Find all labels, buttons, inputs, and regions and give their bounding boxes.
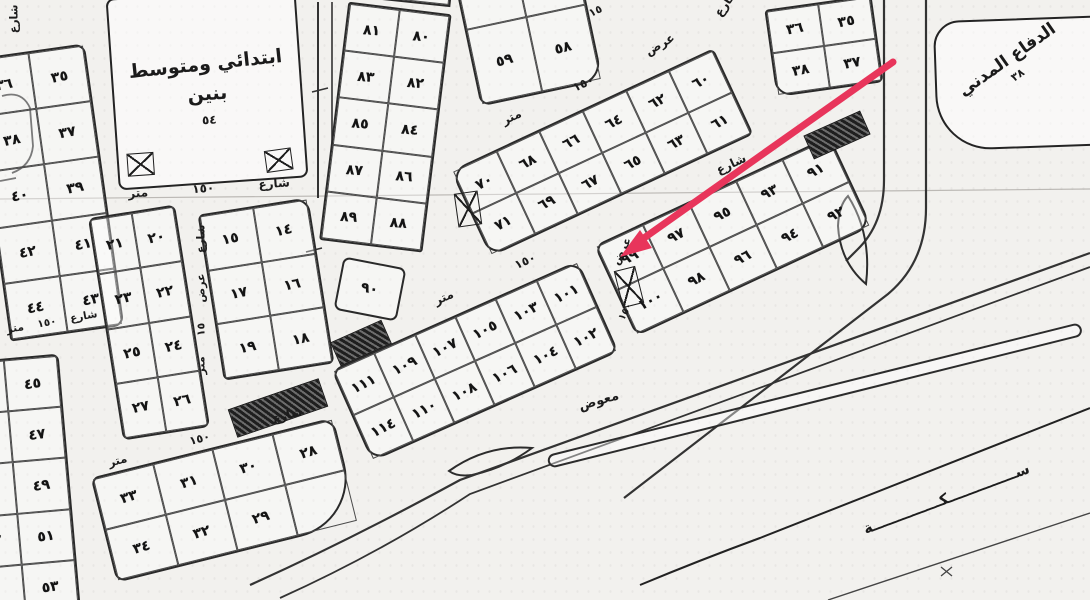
plot-cell: ٥١ — [17, 509, 74, 565]
plot-number: ١٩ — [238, 338, 258, 357]
plot-number: ٤١ — [73, 235, 93, 254]
plot-number: ١٠٤ — [530, 343, 560, 369]
plot-number: ٦٠ — [689, 70, 712, 92]
meter-word: متر — [195, 356, 208, 374]
plot-cell: ٣٥ — [28, 46, 91, 109]
plot-number: ٤٣ — [81, 290, 101, 309]
plot-number: ٢٩ — [251, 508, 272, 528]
plot-cell: ٨٠ — [394, 10, 449, 63]
street-width-value: ١٥ — [195, 323, 208, 336]
utility-box-icon — [264, 147, 294, 173]
plot-number: ٢٦ — [173, 391, 193, 410]
plot-cell: ٤٧ — [8, 407, 65, 463]
plot-cell: ٣٩ — [44, 157, 107, 220]
plot-cell: ٣٦ — [767, 4, 824, 53]
plot-number: ٣٥ — [49, 68, 69, 87]
plot-number: ٢٠ — [147, 228, 167, 247]
plot-number: ١٠٣ — [511, 299, 541, 325]
plot-number: ٢٣ — [114, 289, 134, 308]
street-label-vertical: شارع عرض ١٥ متر — [195, 225, 208, 375]
plot-number: ٤٢ — [18, 243, 38, 262]
plot-number: ٩٢ — [825, 203, 848, 225]
plot-block-35-38-east: ٣٦٣٥٣٨٣٧ — [764, 0, 883, 97]
plot-number: ٣٩ — [65, 179, 85, 198]
plot-cell: ٨٦ — [377, 151, 432, 204]
plot-number: ١١٤ — [368, 415, 398, 441]
plot-number: ١٦ — [283, 275, 303, 294]
plot-number: ٣٢ — [191, 523, 212, 543]
plot-cell: ٨٣ — [339, 51, 394, 104]
plot-number: ٦٥ — [622, 152, 645, 174]
plot-number: ٦٩ — [535, 192, 558, 214]
plot-number: ١٤ — [274, 221, 294, 240]
plot-number: ٨٩ — [340, 209, 358, 226]
plot-cell: ٢٢ — [140, 261, 190, 322]
plot-number: ٥١ — [36, 528, 55, 546]
plot-number: ٣٨ — [2, 131, 22, 150]
plot-number: ٤٩ — [32, 477, 51, 495]
plot-cell: ٨١ — [344, 4, 399, 57]
plot-number: ٩٠ — [360, 280, 379, 298]
plot-number: ٣٥ — [837, 12, 857, 31]
plot-cell: ١٦ — [262, 254, 324, 316]
plot-cell: ١٩ — [217, 316, 279, 378]
plot-cell: ٤٥ — [4, 356, 61, 412]
width-word: عرض — [195, 273, 208, 302]
plot-cell: ٨٩ — [321, 191, 376, 244]
corner-island — [449, 447, 532, 475]
plot-number: ٢٥ — [123, 343, 143, 362]
utility-box-icon — [126, 152, 155, 177]
meter-word: متر — [128, 185, 149, 200]
plot-cell: ٢٦ — [158, 370, 208, 431]
plot-number: ٨٤ — [401, 122, 419, 139]
plot-number: ٥٩ — [494, 51, 515, 71]
plot-number: ١٨ — [291, 329, 311, 348]
plot-number: ٤٤ — [26, 298, 46, 317]
street-width-value: ١٥٠ — [192, 181, 215, 196]
plot-number: ٥٣ — [41, 579, 60, 597]
plot-number: ٣٧ — [843, 54, 863, 73]
plot-cell: ٤٠ — [0, 165, 51, 228]
plot-number: ٨٨ — [390, 215, 408, 232]
plot-number: ٨٠ — [413, 28, 431, 45]
plot-number: ٦٦ — [559, 131, 582, 153]
street-word: شارع — [258, 175, 290, 191]
plot-number: ٢٨ — [298, 442, 319, 462]
plot-cell: ٣٨ — [773, 46, 830, 95]
plot-number: ١٠٨ — [449, 379, 479, 405]
plot-number: ٧١ — [492, 212, 515, 234]
plot-number: ٨١ — [363, 22, 381, 39]
plot-number: ١٧ — [229, 284, 249, 303]
plot-number: ٦٤ — [603, 111, 626, 133]
plot-cell: ١٥ — [200, 208, 262, 270]
plot-number: ٦٧ — [579, 172, 602, 194]
scanned-plot-map: ٣٦٣٥٣٨٣٧٤٠٣٩٤٢٤١٤٤٤٣ ٤٦٤٥٤٨٤٧٥٠٤٩٥٢٥١٥٣ … — [0, 0, 1090, 600]
plot-number: ١١١ — [349, 371, 379, 397]
plot-number: ٣٠ — [238, 457, 259, 477]
plot-number: ٣٦ — [785, 19, 805, 38]
plot-number: ٨٢ — [407, 75, 425, 92]
civil-defense-title: الدفاع المدني — [955, 19, 1060, 101]
school-block: ابتدائي ومتوسط بنين ٥٤ — [106, 0, 309, 190]
plot-number: ١٠٦ — [490, 361, 520, 387]
plot-cell: ٨٤ — [383, 104, 438, 157]
plot-number: ١٥ — [221, 230, 241, 249]
civil-defense-block: الدفاع المدني ٣٨ — [933, 15, 1090, 151]
plot-number: ٨٥ — [351, 115, 369, 132]
plot-number: ٣٦ — [0, 76, 14, 95]
plot-number: ٦٣ — [665, 132, 688, 154]
school-title-line2: بنين — [187, 82, 228, 107]
plot-cell: ٨٧ — [327, 144, 382, 197]
plot-number: ٦٨ — [516, 151, 539, 173]
plot-number: ٣١ — [178, 472, 199, 492]
plot-number: ٣٤ — [131, 537, 152, 557]
plot-number: ١٠٩ — [389, 353, 419, 379]
plot-number: ٥٢ — [0, 532, 3, 550]
plot-number: ١١٠ — [409, 397, 439, 423]
boundary-tick — [941, 567, 952, 576]
plot-number: ٥٨ — [553, 38, 574, 58]
plot-cell: ١٧ — [208, 262, 270, 324]
plot-cell: ٨٢ — [388, 57, 443, 110]
plot-number: ٢٤ — [164, 337, 184, 356]
plot-cell: ٢٤ — [149, 316, 199, 377]
plot-number: ٨٣ — [357, 69, 375, 86]
plot-number: ٩٧ — [665, 225, 688, 247]
street-word: شارع — [195, 225, 208, 254]
plot-number: ٢٧ — [131, 398, 151, 417]
plot-number: ١٠٥ — [470, 317, 500, 343]
plot-cell: ٤٢ — [0, 220, 59, 283]
plot-number: ٣٨ — [791, 61, 811, 80]
plot-number: ٤٥ — [23, 375, 42, 393]
plot-number: ٨٧ — [346, 162, 364, 179]
plot-number: ٩١ — [804, 160, 827, 182]
plot-number: ٢١ — [105, 234, 125, 253]
plot-number: ٦٢ — [646, 91, 669, 113]
utility-box-icon — [454, 190, 482, 227]
plot-cell: ٣٧ — [36, 101, 99, 164]
plot-number: ٤٧ — [27, 426, 46, 444]
plot-number: ١٠١ — [551, 281, 581, 307]
plot-number: ٨٦ — [395, 168, 413, 185]
plot-number: ٢٢ — [155, 282, 175, 301]
plot-cell: ٨٨ — [371, 197, 426, 250]
plot-number: ٩٦ — [732, 247, 755, 269]
plot-cell: ٢٠ — [132, 207, 182, 268]
school-plot-number: ٥٤ — [201, 112, 217, 127]
plot-number: ٩٤ — [778, 225, 801, 247]
street-word: شارع — [8, 5, 21, 34]
plot-cell: ٥٣ — [22, 560, 79, 600]
plot-number: ١٠٢ — [571, 325, 601, 351]
plot-cell: ٣٧ — [824, 39, 881, 88]
plot-cell: ٤٩ — [13, 458, 70, 514]
plot-number: ٩٨ — [685, 268, 708, 290]
plot-cell: ١٨ — [270, 308, 332, 370]
plot-number: ٩٣ — [758, 182, 781, 204]
plot-number: ٤٠ — [10, 187, 30, 206]
plot-cell: ١٤ — [253, 200, 315, 262]
street-label: شارع — [8, 5, 21, 65]
plot-number: ٦١ — [708, 112, 731, 134]
plot-number: ٣٣ — [119, 487, 140, 507]
school-title-line1: ابتدائي ومتوسط — [128, 45, 284, 83]
plot-number: ١٠٧ — [430, 335, 460, 361]
plot-cell: ٨٥ — [333, 98, 388, 151]
plot-number: ٩٥ — [712, 203, 735, 225]
plot-number: ٣٧ — [57, 123, 77, 142]
